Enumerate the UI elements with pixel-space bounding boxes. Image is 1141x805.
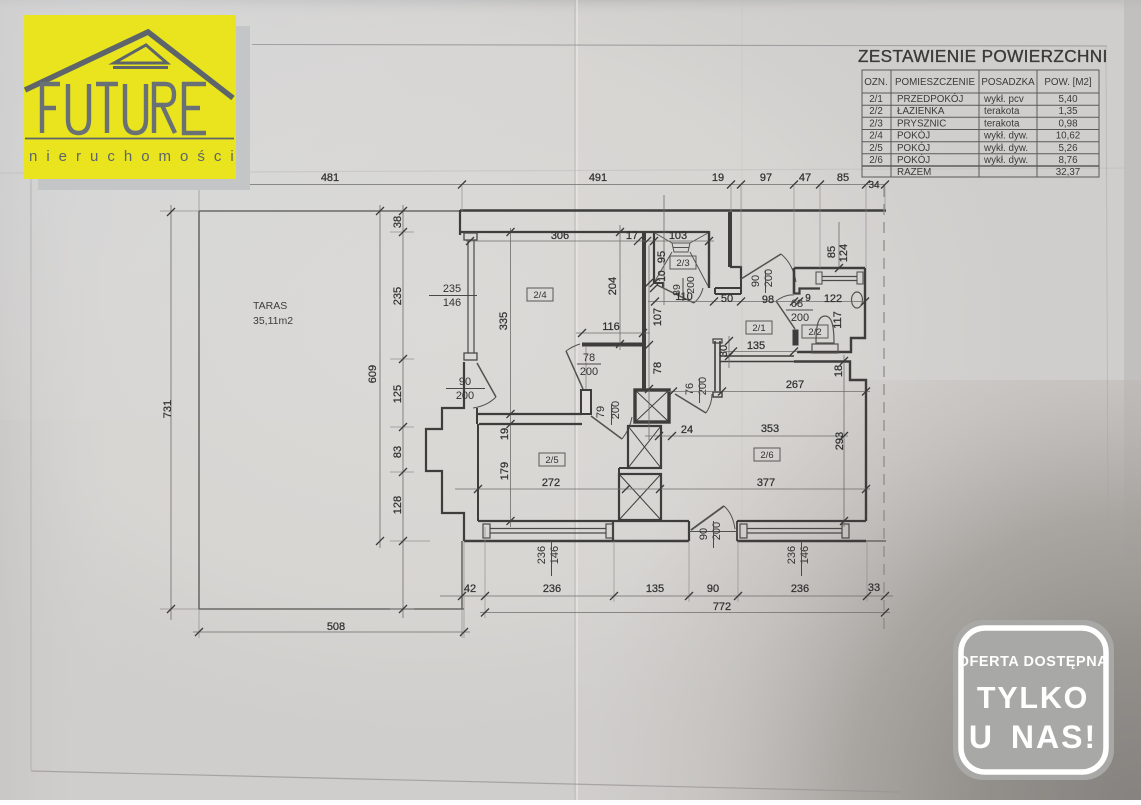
- svg-text:POSADZKA: POSADZKA: [981, 77, 1035, 88]
- svg-text:200: 200: [456, 390, 474, 402]
- svg-text:508: 508: [327, 621, 345, 633]
- svg-text:293: 293: [834, 432, 846, 450]
- svg-text:0,98: 0,98: [1058, 118, 1078, 129]
- svg-text:wykł. dyw.: wykł. dyw.: [983, 131, 1028, 142]
- svg-text:125: 125: [392, 385, 404, 403]
- svg-text:17: 17: [626, 230, 638, 242]
- svg-text:8,76: 8,76: [1058, 155, 1078, 166]
- svg-text:5,40: 5,40: [1058, 94, 1078, 105]
- svg-text:236: 236: [536, 546, 548, 564]
- svg-text:nieruchomości: nieruchomości: [29, 148, 243, 165]
- svg-text:90: 90: [750, 275, 762, 287]
- svg-text:95: 95: [656, 251, 668, 263]
- svg-text:200: 200: [791, 312, 809, 324]
- svg-text:2/2: 2/2: [869, 106, 883, 117]
- svg-text:377: 377: [757, 477, 775, 489]
- svg-text:2/4: 2/4: [869, 131, 883, 142]
- svg-text:2/2: 2/2: [808, 327, 821, 338]
- svg-text:90: 90: [707, 583, 719, 595]
- svg-text:98: 98: [762, 294, 774, 306]
- svg-text:2/6: 2/6: [869, 155, 883, 166]
- svg-text:35,11m2: 35,11m2: [253, 315, 293, 327]
- svg-text:24: 24: [681, 424, 693, 436]
- svg-text:2/6: 2/6: [760, 450, 773, 461]
- svg-text:42: 42: [464, 583, 476, 595]
- svg-text:135: 135: [646, 583, 664, 595]
- svg-text:204: 204: [607, 277, 619, 295]
- svg-text:124: 124: [838, 244, 850, 262]
- svg-text:19: 19: [712, 172, 724, 184]
- svg-text:179: 179: [499, 462, 511, 480]
- svg-text:33: 33: [868, 582, 880, 594]
- svg-text:235: 235: [392, 287, 404, 305]
- svg-text:2/1: 2/1: [752, 323, 765, 334]
- svg-text:79: 79: [595, 406, 607, 418]
- svg-text:2/5: 2/5: [869, 143, 883, 154]
- svg-text:89: 89: [671, 284, 683, 296]
- svg-text:PRZEDPOKÓJ: PRZEDPOKÓJ: [897, 94, 964, 105]
- svg-text:90: 90: [459, 376, 471, 388]
- svg-text:OFERTA DOSTĘPNA: OFERTA DOSTĘPNA: [958, 654, 1109, 670]
- svg-text:RAZEM: RAZEM: [897, 167, 931, 178]
- svg-text:2/3: 2/3: [869, 118, 883, 129]
- svg-text:97: 97: [760, 172, 772, 184]
- svg-text:terakota: terakota: [984, 118, 1020, 129]
- svg-text:306: 306: [551, 230, 569, 242]
- svg-text:34: 34: [868, 180, 880, 191]
- svg-text:117: 117: [832, 311, 844, 329]
- svg-text:POMIESZCZENIE: POMIESZCZENIE: [895, 77, 975, 88]
- svg-text:38: 38: [392, 216, 404, 228]
- svg-text:1,35: 1,35: [1058, 106, 1078, 117]
- svg-text:122: 122: [824, 293, 842, 305]
- svg-text:146: 146: [549, 546, 561, 564]
- svg-text:772: 772: [713, 601, 731, 613]
- svg-text:107: 107: [652, 308, 664, 326]
- svg-text:ŁAZIENKA: ŁAZIENKA: [897, 106, 945, 117]
- svg-text:491: 491: [589, 172, 607, 184]
- svg-text:2/3: 2/3: [676, 258, 689, 269]
- svg-text:128: 128: [392, 496, 404, 514]
- svg-text:135: 135: [747, 340, 765, 352]
- svg-text:731: 731: [162, 400, 174, 418]
- svg-text:78: 78: [652, 362, 664, 374]
- svg-text:POKÓJ: POKÓJ: [897, 155, 930, 166]
- svg-text:wykł. dyw.: wykł. dyw.: [983, 143, 1028, 154]
- svg-text:5,26: 5,26: [1058, 143, 1078, 154]
- svg-text:200: 200: [580, 366, 598, 378]
- svg-text:78: 78: [583, 352, 595, 364]
- svg-text:103: 103: [669, 230, 687, 242]
- svg-text:10: 10: [657, 270, 668, 282]
- svg-text:200: 200: [763, 269, 775, 287]
- svg-text:9: 9: [805, 293, 811, 304]
- svg-text:ZESTAWIENIE POWIERZCHNI: ZESTAWIENIE POWIERZCHNI: [858, 46, 1108, 66]
- svg-text:OZN.: OZN.: [864, 77, 887, 88]
- svg-text:335: 335: [498, 312, 510, 330]
- svg-text:90: 90: [698, 528, 710, 540]
- svg-text:wykł. pcv: wykł. pcv: [983, 94, 1024, 105]
- svg-text:481: 481: [321, 172, 339, 184]
- svg-text:POKÓJ: POKÓJ: [897, 143, 930, 154]
- svg-text:47: 47: [799, 172, 811, 184]
- svg-text:116: 116: [602, 321, 620, 333]
- svg-text:236: 236: [543, 583, 561, 595]
- svg-text:TYLKO: TYLKO: [977, 681, 1089, 715]
- svg-text:32,37: 32,37: [1056, 167, 1081, 178]
- svg-text:30: 30: [718, 345, 730, 357]
- svg-text:2/4: 2/4: [533, 290, 546, 301]
- svg-text:85: 85: [826, 246, 838, 258]
- svg-text:18: 18: [833, 365, 845, 377]
- svg-text:U NAS!: U NAS!: [969, 719, 1097, 755]
- svg-text:PRYSZNIC: PRYSZNIC: [897, 118, 946, 129]
- svg-text:200: 200: [697, 377, 709, 395]
- svg-text:609: 609: [367, 365, 379, 383]
- svg-text:50: 50: [721, 293, 733, 305]
- svg-text:19: 19: [499, 428, 511, 440]
- svg-text:TARAS: TARAS: [253, 300, 287, 312]
- svg-text:2/1: 2/1: [869, 94, 883, 105]
- svg-text:POW. [M2]: POW. [M2]: [1044, 77, 1092, 88]
- svg-text:236: 236: [786, 546, 798, 564]
- svg-text:POKÓJ: POKÓJ: [897, 131, 930, 142]
- svg-text:353: 353: [761, 423, 779, 435]
- svg-text:2/5: 2/5: [545, 455, 558, 466]
- svg-text:wykł. dyw.: wykł. dyw.: [983, 155, 1028, 166]
- svg-text:200: 200: [685, 276, 697, 294]
- svg-text:83: 83: [392, 446, 404, 458]
- svg-text:267: 267: [786, 379, 804, 391]
- svg-text:76: 76: [684, 383, 696, 395]
- svg-text:236: 236: [791, 583, 809, 595]
- svg-text:146: 146: [799, 546, 811, 564]
- svg-text:10,62: 10,62: [1056, 131, 1081, 142]
- svg-text:terakota: terakota: [984, 106, 1020, 117]
- svg-text:235: 235: [443, 283, 461, 295]
- svg-text:85: 85: [837, 172, 849, 184]
- svg-text:146: 146: [443, 297, 461, 309]
- svg-text:200: 200: [711, 522, 723, 540]
- svg-text:272: 272: [542, 477, 560, 489]
